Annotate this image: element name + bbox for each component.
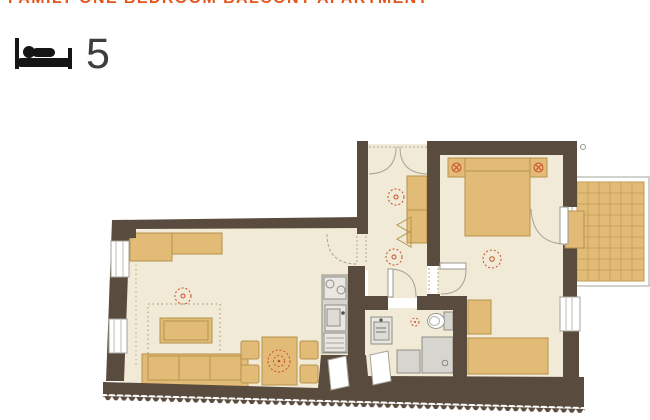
desk bbox=[468, 300, 491, 334]
floor-plan-page: FAMILY ONE BEDROOM BALCONY APARTMENT 5 bbox=[0, 0, 650, 420]
basement-window bbox=[370, 351, 391, 385]
washing-machine bbox=[397, 350, 420, 373]
wall-bedroom-right bbox=[563, 141, 577, 207]
wall-bedroom-right bbox=[563, 245, 577, 297]
dining-chair bbox=[300, 365, 318, 383]
wardrobe bbox=[407, 210, 427, 243]
bench bbox=[468, 338, 548, 374]
wall-bedroom-right bbox=[563, 331, 579, 381]
wardrobe bbox=[407, 176, 427, 210]
wall-hallway-left bbox=[357, 141, 368, 234]
basement-window bbox=[328, 356, 349, 390]
window bbox=[109, 319, 127, 353]
cooktop bbox=[324, 277, 346, 299]
door-stop-symbol bbox=[581, 145, 586, 150]
window bbox=[111, 241, 129, 277]
kitchen-counter bbox=[322, 275, 348, 353]
kitchen-cabinet bbox=[324, 333, 346, 352]
coffee-table bbox=[160, 318, 212, 343]
shower bbox=[422, 337, 453, 373]
toilet bbox=[428, 312, 454, 330]
wall-hall-bedroom bbox=[427, 141, 440, 266]
dining-chair bbox=[241, 341, 259, 359]
wall-bathroom-top bbox=[362, 296, 388, 310]
wall-kitchen-side bbox=[348, 266, 365, 386]
bathroom-sink bbox=[371, 317, 392, 344]
window bbox=[560, 297, 580, 331]
dining-chair bbox=[300, 341, 318, 359]
sofa bbox=[142, 354, 248, 388]
dining-chair bbox=[241, 365, 259, 383]
wall-bath-bedroom bbox=[453, 306, 467, 378]
balcony-grid bbox=[577, 182, 644, 281]
sideboard-end bbox=[130, 233, 172, 261]
apartment-floor-plan bbox=[0, 0, 650, 420]
double-bed bbox=[465, 158, 530, 236]
wall-bedroom-top bbox=[427, 141, 577, 155]
